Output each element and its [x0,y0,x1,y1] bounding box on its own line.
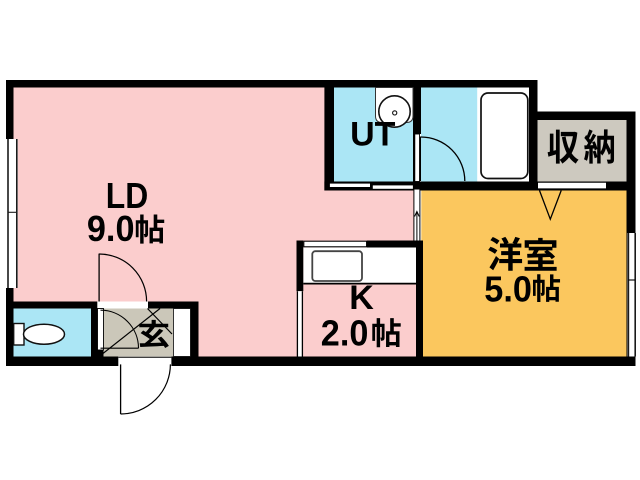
svg-text:2.0: 2.0 [321,312,369,353]
svg-text:K: K [349,279,374,317]
svg-text:9.0: 9.0 [87,208,135,249]
svg-text:5.0: 5.0 [484,269,532,310]
svg-text:UT: UT [350,115,396,153]
